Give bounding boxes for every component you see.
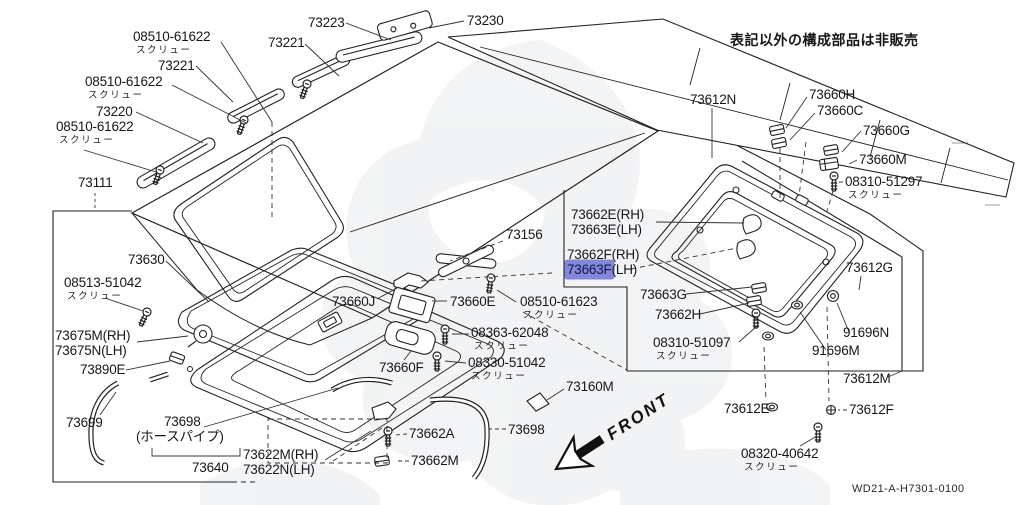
part-label: 73622N(LH) — [243, 463, 315, 477]
part-label: 08510-61622スクリュー — [85, 75, 162, 101]
part-label-sub: スクリュー — [848, 191, 922, 201]
part-label-text: (ホースパイプ) — [136, 429, 224, 444]
part-label-text: 73662M — [411, 453, 459, 468]
part-label: 73660E — [450, 295, 495, 309]
clip-73660m-icon — [819, 157, 838, 170]
part-label: 91696N — [843, 326, 889, 340]
clip-73663g-icon — [751, 282, 766, 293]
screw-icon — [830, 172, 838, 191]
part-label-text: 08510-61622 — [56, 119, 133, 134]
screw-icon — [814, 423, 822, 442]
part-label-text: 73612G — [846, 260, 893, 275]
hinge-73662e-icon — [737, 215, 761, 259]
part-label-text: 73698 — [508, 422, 545, 437]
part-label-sub: スクリュー — [656, 352, 730, 362]
part-label: 73612G — [846, 261, 893, 275]
part-label: 73662E(RH) — [571, 208, 644, 222]
part-label-text: 73612M — [843, 371, 891, 386]
part-label: 91696M — [812, 344, 860, 358]
clip-73660c-icon — [771, 137, 787, 149]
part-label: 73660M — [859, 153, 907, 167]
part-label-sub: スクリュー — [523, 311, 597, 321]
clip-73660g-icon — [823, 144, 838, 155]
part-label: 73612N — [690, 93, 736, 107]
part-label-text: 91696M — [812, 343, 860, 358]
part-label: 08320-40642スクリュー — [741, 447, 818, 473]
part-label-text: 08330-51042 — [468, 355, 545, 370]
part-label: 08310-51297スクリュー — [845, 175, 922, 201]
part-label-sub: スクリュー — [59, 136, 133, 146]
part-label-text: 73699 — [66, 415, 103, 430]
part-label-text: 73675M(RH) — [55, 328, 130, 343]
clip-73660h-icon — [769, 124, 785, 136]
part-label: 08510-61622スクリュー — [56, 120, 133, 146]
part-label-text: 73663E(LH) — [571, 222, 642, 237]
part-label: 73230 — [467, 14, 504, 28]
part-label-text: 73660F — [379, 360, 424, 375]
part-label-text: (LH) — [612, 262, 637, 277]
part-label: 73660F — [379, 361, 424, 375]
part-label-text: 73230 — [467, 13, 504, 28]
stopper-73675-icon — [188, 325, 212, 347]
part-label: 73662F(RH) — [567, 248, 639, 262]
part-label: 73612E — [724, 402, 769, 416]
part-label-text: 73660E — [450, 294, 495, 309]
part-label-text: 08510-61623 — [520, 294, 597, 309]
part-label-text: 08510-61622 — [133, 29, 210, 44]
part-label: 73662M — [411, 454, 459, 468]
drawing-number: WD21-A-H7301-0100 — [852, 483, 965, 495]
part-label: (ホースパイプ) — [136, 430, 224, 444]
part-label-text: 08310-51097 — [653, 335, 730, 350]
part-label: 73223 — [308, 16, 345, 30]
part-label: 08510-61622スクリュー — [133, 30, 210, 56]
part-label-text: 73660H — [809, 87, 855, 102]
part-label: 73662A — [409, 427, 454, 441]
part-label-sub: スクリュー — [88, 91, 162, 101]
clip-73662h-icon — [746, 295, 761, 306]
part-label-text: 73630 — [128, 252, 165, 267]
part-label: 73160M — [566, 380, 614, 394]
part-label-text: 73675N(LH) — [55, 343, 127, 358]
part-label-sub: スクリュー — [471, 372, 545, 382]
part-label-text: 73220 — [96, 104, 133, 119]
part-label-text: 73660C — [817, 103, 863, 118]
part-label-text: 08510-61622 — [85, 74, 162, 89]
part-label-text: 08513-51042 — [64, 275, 141, 290]
part-label-text: 91696N — [843, 325, 889, 340]
part-label: 73221 — [268, 36, 305, 50]
part-label: 73612M — [843, 372, 891, 386]
part-label-text: 73660J — [332, 294, 375, 309]
part-label: 73612F — [849, 403, 894, 417]
part-label-text: 08320-40642 — [741, 446, 818, 461]
part-label: 73660G — [863, 124, 910, 138]
part-label-highlighted: 73663F(LH) — [567, 263, 637, 277]
grommet-icon — [763, 332, 774, 340]
part-label-text: 73221 — [268, 35, 305, 50]
part-label-text: 73111 — [78, 175, 113, 190]
part-label: 73220 — [96, 105, 133, 119]
part-label: 73111 — [78, 176, 113, 190]
nut-91696n-icon — [828, 291, 839, 302]
part-label: 73663G — [640, 288, 687, 302]
part-label: 73663E(LH) — [571, 223, 642, 237]
part-label-text: 73662E(RH) — [571, 207, 644, 222]
part-label-text: 73622M(RH) — [243, 447, 318, 462]
grommet-91696m-icon — [792, 301, 803, 309]
part-label-text: 73660M — [859, 152, 907, 167]
hose-pipe-73698 — [150, 374, 392, 390]
roof-opening — [174, 137, 344, 301]
part-label: 08513-51042スクリュー — [64, 276, 141, 302]
part-label: 73640 — [192, 461, 229, 475]
part-label: 73156 — [506, 228, 543, 242]
part-label-text: 73156 — [506, 227, 543, 242]
part-label-text: 73698 — [164, 414, 201, 429]
part-label: 73221 — [158, 59, 195, 73]
part-label: 08310-51097スクリュー — [653, 336, 730, 362]
part-label: 73675M(RH) — [55, 329, 130, 343]
part-label-text: 73663G — [640, 287, 687, 302]
part-label: 73622M(RH) — [243, 448, 318, 462]
part-label-text: 73612N — [690, 92, 736, 107]
part-label-text: 73640 — [192, 460, 229, 475]
highlighted-part-number: 73663F — [567, 262, 612, 277]
clip-73890e-icon — [169, 351, 185, 364]
part-label: 73660C — [817, 104, 863, 118]
nut-73612f-icon — [827, 406, 836, 415]
part-label: 73662H — [655, 308, 701, 322]
part-label-text: 73662A — [409, 426, 454, 441]
part-label-sub: スクリュー — [744, 463, 818, 473]
part-label: 08330-51042スクリュー — [468, 356, 545, 382]
part-label-text: 73662H — [655, 307, 701, 322]
part-label: 73698 — [164, 415, 201, 429]
part-label-text: 73612E — [724, 401, 769, 416]
part-label: 73699 — [66, 416, 103, 430]
part-label: 73698 — [508, 423, 545, 437]
part-label: 08363-62048スクリュー — [471, 326, 548, 352]
part-label-text: 73622N(LH) — [243, 462, 315, 477]
part-label-sub: スクリュー — [136, 46, 210, 56]
part-label-text: 08310-51297 — [845, 174, 922, 189]
part-label-text: 73223 — [308, 15, 345, 30]
part-label: 73660H — [809, 88, 855, 102]
part-label-text: 73890E — [80, 362, 125, 377]
part-label: 73675N(LH) — [55, 344, 127, 358]
part-label: 08510-61623スクリュー — [520, 295, 597, 321]
part-label-sub: スクリュー — [474, 342, 548, 352]
parts-diagram-page: FRONT 表記以外の構成部品は非販売 WD21-A-H7301-0100 08… — [0, 0, 1024, 505]
part-label-text: 73221 — [158, 58, 195, 73]
part-label-text: 73160M — [566, 379, 614, 394]
part-label: 73890E — [80, 363, 125, 377]
part-label-text: 73662F(RH) — [567, 247, 639, 262]
part-label: 73660J — [332, 295, 375, 309]
part-label-text: 73660G — [863, 123, 910, 138]
part-label-text: 08363-62048 — [471, 325, 548, 340]
note-jp: 表記以外の構成部品は非販売 — [730, 30, 919, 50]
part-label-text: 73612F — [849, 402, 894, 417]
part-label: 73630 — [128, 253, 165, 267]
part-label-sub: スクリュー — [67, 292, 141, 302]
